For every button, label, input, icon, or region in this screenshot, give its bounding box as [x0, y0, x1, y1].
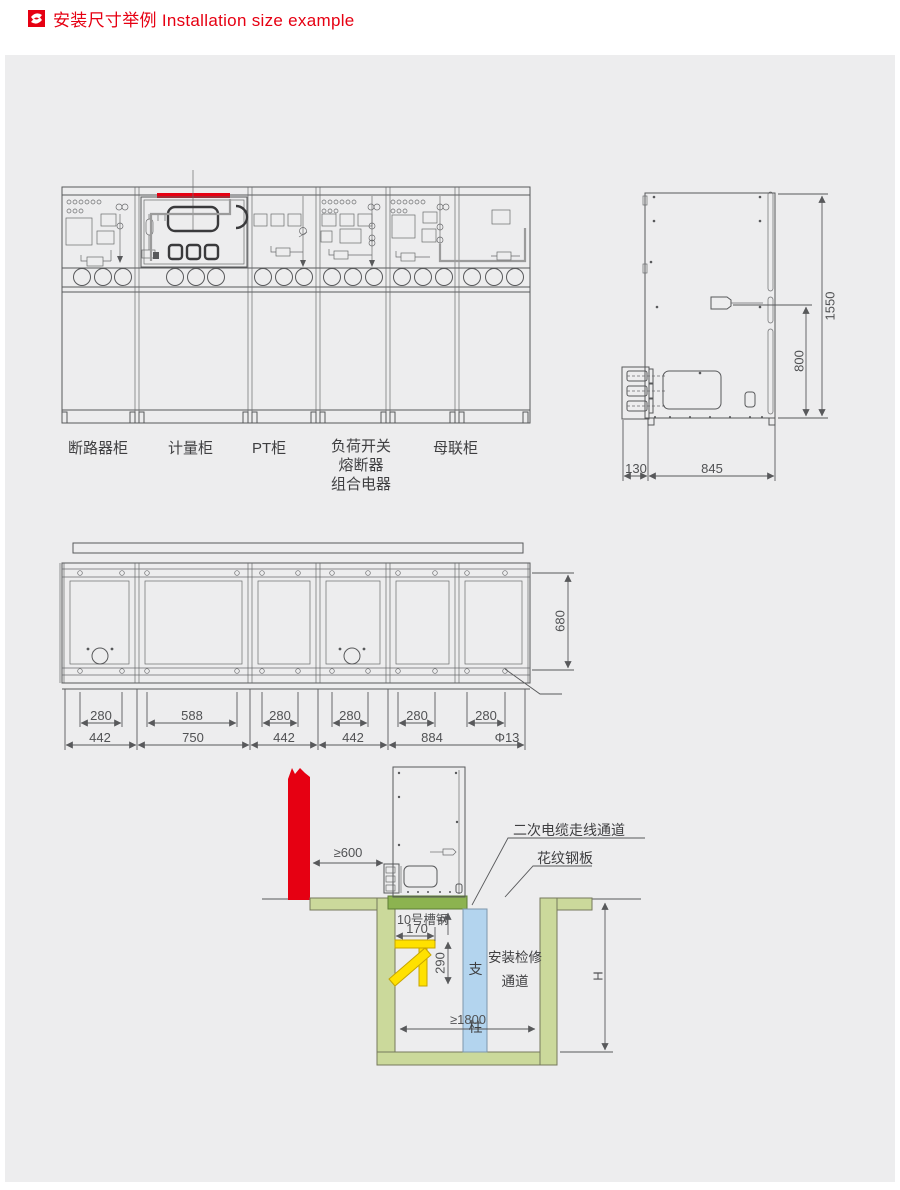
dim-trench-width: ≥1800	[440, 1012, 496, 1027]
cabinet-label-metering: 计量柜	[168, 437, 213, 458]
cabinet-label-pt: PT柜	[252, 437, 286, 458]
label-checkered-plate: 花纹钢板	[537, 848, 593, 868]
dim-bay-width-3: 442	[264, 730, 304, 745]
dim-mechanism-height: 800	[792, 350, 807, 372]
dim-hole-span-5: 280	[397, 708, 437, 723]
side-elevation-view	[622, 192, 828, 481]
label-aisle: 安装检修 通道	[486, 946, 544, 994]
dim-bay-width-1: 442	[80, 730, 120, 745]
label-pillar: 支 柱	[467, 940, 484, 1056]
dim-hole-span-1: 280	[81, 708, 121, 723]
catalog-page: 安装尺寸举例 Installation size example	[0, 0, 900, 1190]
wall-red	[288, 768, 310, 900]
dim-hole-span-3: 280	[260, 708, 300, 723]
dim-bracket-drop: 290	[433, 952, 448, 974]
cabinet-label-breaker: 断路器柜	[68, 437, 128, 458]
section-cabinet	[384, 767, 465, 897]
cabinet-label-switch-fuse: 负荷开关 熔断器 组合电器	[315, 437, 407, 494]
front-elevation-view	[62, 170, 530, 423]
channel-steel-beam	[388, 896, 467, 909]
bracket-arm	[395, 940, 435, 948]
cabinet-label-bus-tie: 母联柜	[433, 437, 478, 458]
dim-rear-depth: 130	[622, 461, 650, 476]
dim-hole-span-6: 280	[466, 708, 506, 723]
dim-trench-depth: H	[591, 971, 606, 980]
label-cable-channel: 二次电缆走线通道	[513, 820, 625, 840]
dim-beam-height: h	[437, 916, 449, 922]
dim-total-height: 1550	[823, 292, 838, 321]
dim-hole-span-2: 588	[172, 708, 212, 723]
dim-wall-clearance: ≥600	[320, 845, 376, 860]
label-hole-diameter: Φ13	[487, 730, 527, 745]
dim-bracket-width: 170	[398, 921, 436, 936]
floor-slab-left	[310, 898, 377, 910]
dim-hole-span-4: 280	[330, 708, 370, 723]
dim-plan-depth: 680	[553, 610, 568, 632]
floor-slab-right	[557, 898, 592, 910]
dim-body-depth: 845	[690, 461, 734, 476]
dim-bay-width-2: 750	[173, 730, 213, 745]
dim-bay-width-5: 884	[412, 730, 452, 745]
dim-bay-width-4: 442	[333, 730, 373, 745]
